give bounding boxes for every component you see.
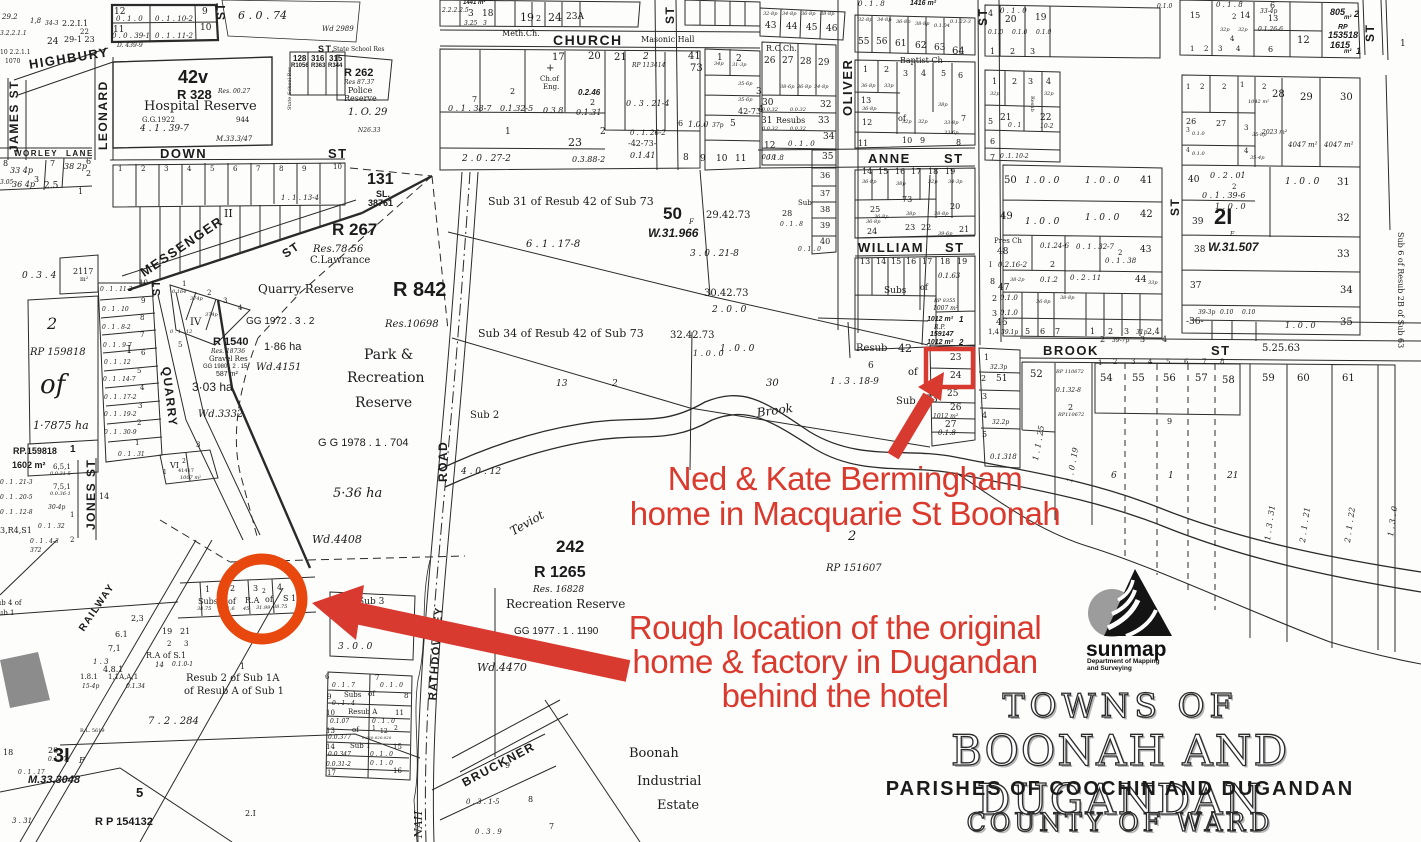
map-label: 0.10 — [1220, 310, 1233, 316]
map-label: Reserve — [355, 396, 412, 410]
map-label: 54 — [1100, 374, 1113, 384]
map-label: of Resub A of Sub 1 — [184, 687, 284, 697]
map-label: 31-3p — [732, 63, 746, 68]
map-label: 32 — [820, 101, 831, 110]
map-label: 0.1.23-3 — [950, 20, 971, 25]
map-label: 8 — [279, 166, 283, 173]
map-label: ST — [664, 6, 676, 24]
map-label: 8 — [140, 315, 144, 322]
map-label: 2 — [600, 128, 606, 137]
map-label: 7 — [375, 675, 379, 682]
map-label: 4 — [238, 305, 242, 312]
map-label: 3 — [992, 310, 997, 318]
map-label: 4 — [1162, 336, 1167, 344]
map-label: CHURCH — [553, 33, 623, 47]
map-label: 242 — [556, 538, 584, 555]
map-label: 23A — [566, 13, 584, 22]
map-label: 0 . 1 . 0 — [1000, 8, 1027, 15]
map-label: 34 — [1340, 286, 1353, 296]
map-label: 38p — [906, 212, 916, 217]
map-label: 0 . 1 . 19-2 — [104, 412, 137, 418]
map-label: Subs — [884, 287, 906, 296]
map-label: 2 — [86, 170, 91, 178]
map-label: 1 — [1400, 40, 1406, 49]
map-label: Wd.4470 — [477, 662, 527, 673]
map-label: 0.1.04 — [934, 24, 950, 29]
map-label: 1 — [959, 316, 963, 324]
map-label: 19 — [957, 258, 967, 266]
map-label: 6 — [1268, 46, 1273, 54]
map-label: 2 — [1100, 336, 1105, 344]
map-label: 7 . 2 . 284 — [148, 717, 199, 727]
map-label: 15-4p — [82, 684, 99, 690]
map-label: ST — [1169, 198, 1181, 216]
map-label: 6 — [141, 350, 145, 357]
map-label: Reserve — [344, 95, 377, 103]
map-label: 17 — [552, 53, 565, 63]
map-label: 1 — [863, 66, 868, 74]
map-label: 61 — [1342, 374, 1355, 384]
map-label: 1·7875 ha — [33, 420, 89, 431]
map-label: 2 — [992, 295, 997, 303]
map-label: R.L. 5619 — [80, 729, 105, 734]
map-label: 24 — [867, 228, 877, 236]
map-label: Baptist Ch — [900, 57, 943, 65]
map-label: 5 — [941, 70, 946, 78]
map-label: Sub 4 of — [0, 600, 22, 607]
map-label: 4 — [1186, 148, 1190, 154]
map-label: Resub — [856, 344, 887, 354]
map-label: 1 — [118, 166, 122, 173]
map-label: 56 — [1163, 374, 1176, 384]
map-label: 1 — [1186, 84, 1190, 91]
map-label: 4 — [758, 106, 764, 115]
map-label: 0 . 1 . 0 — [370, 752, 393, 758]
map-label: 3.2.2.1.1 — [0, 31, 27, 37]
map-label: 34-3p — [948, 180, 962, 185]
map-label: 1 . 0 . 0 — [1285, 322, 1316, 330]
map-label: Industrial — [637, 775, 701, 788]
map-label: 39-6p — [938, 232, 952, 237]
map-label: 0 . 1 . 32 — [38, 524, 65, 530]
map-label: 10 — [902, 137, 912, 145]
map-label: R 1265 — [534, 565, 586, 581]
map-label: 0.1.6 — [222, 607, 235, 612]
map-label: 49 — [1000, 212, 1013, 222]
map-label: 1.0.0 — [688, 121, 708, 129]
map-label: 38-2p — [1010, 278, 1024, 283]
map-label: 0 . 1 . 12 — [104, 360, 131, 366]
map-label: of — [40, 372, 65, 398]
map-label: 32.42.73 — [670, 331, 715, 341]
map-label: 10 — [139, 280, 148, 287]
map-label: F — [79, 757, 85, 765]
map-label: 1 — [135, 440, 139, 447]
map-label: 42 — [898, 343, 912, 354]
map-label: 4 — [1244, 148, 1248, 155]
map-label: 0.1.07 — [330, 719, 349, 725]
map-label: 0 .1. 10-2 — [1000, 154, 1029, 160]
map-label: RP110672 — [1058, 413, 1084, 418]
map-label: 2117 — [73, 268, 93, 276]
map-label: 1007 m² — [933, 306, 958, 312]
map-label: 0.1.26-6 — [1258, 27, 1283, 33]
map-label: 1 . 3 . 18-9 — [830, 378, 879, 387]
map-label: 2 . 0 . 27-2 — [462, 155, 511, 164]
map-label: 3 — [196, 442, 200, 449]
map-label: Sub 1 — [0, 610, 14, 617]
map-label: 374p — [190, 297, 203, 302]
map-label: 29 — [1300, 93, 1313, 103]
map-label: 2.5 — [44, 182, 58, 191]
map-label: GG 1972 . 3 . 2 — [246, 317, 314, 327]
map-label: 2 — [47, 316, 57, 332]
map-label: 14 — [862, 168, 872, 176]
map-label: 7,1 — [108, 645, 121, 653]
map-label: 8 — [528, 796, 533, 804]
map-label: 1 — [1356, 47, 1361, 56]
map-label: 6 — [990, 138, 995, 146]
map-label: M.33.3/47 — [216, 136, 252, 143]
map-label: Subs — [344, 692, 361, 699]
map-label: 45 — [806, 24, 817, 33]
map-label: 26 — [764, 57, 775, 66]
map-label: Sub 34 of Resub 42 of Sub 73 — [478, 328, 644, 339]
map-label: 4 — [140, 385, 144, 392]
map-label: 0 . 1 . 4-3 — [30, 539, 59, 545]
map-label: 37p — [712, 123, 723, 129]
map-label: 11 — [395, 710, 404, 717]
map-label: 21 — [959, 226, 969, 234]
map-label: 62 — [915, 42, 926, 51]
map-label: 3 — [184, 641, 188, 648]
map-label: Wd 2989 — [322, 26, 354, 33]
map-label: 37 — [1190, 282, 1201, 291]
map-label: 6.1 — [115, 631, 128, 639]
map-label: 1042 m² — [1248, 100, 1269, 105]
map-label: 1 . 0 . 0 — [1025, 177, 1059, 186]
map-label: 0.3.8 — [543, 107, 563, 115]
map-label: 20 — [950, 203, 960, 211]
map-label: 18 — [940, 258, 950, 266]
map-label: 36 — [820, 172, 830, 180]
map-label: 18 — [482, 10, 493, 19]
map-label: 0 . 1 — [1008, 123, 1021, 129]
map-label: 0.0.32 — [790, 127, 806, 132]
map-label: 16 — [906, 258, 916, 266]
map-label: R 842 — [393, 280, 446, 300]
map-label: 0.1.2 — [1040, 277, 1058, 284]
map-label: 0.1.0 — [988, 30, 1003, 36]
map-label: 128 — [293, 55, 306, 63]
map-label: 5 — [210, 166, 214, 173]
map-label: 3,R4,S1 — [0, 527, 32, 535]
map-label: 13 — [861, 97, 871, 105]
map-label: 3 — [1140, 336, 1145, 344]
map-label: Resub A — [348, 709, 377, 716]
map-label: 4 — [1046, 78, 1051, 86]
map-label: 9 — [141, 298, 145, 305]
map-label: IV — [190, 318, 201, 328]
map-label: 2.2.2.2.5 — [442, 8, 469, 14]
map-label: 0 . 3 . 21-4 — [626, 100, 669, 108]
map-label: OLIVER — [841, 59, 854, 116]
map-label: Wd.4408 — [312, 534, 362, 545]
map-label: 1 . 0 . 0 — [1025, 218, 1059, 227]
map-label: 0.0.32 — [790, 108, 806, 113]
map-label: 10-2 — [1040, 124, 1053, 130]
map-label: 5 — [178, 342, 182, 349]
map-label: Resubs — [776, 117, 805, 125]
map-label: 7 — [1202, 359, 1206, 366]
map-label: 35-6p — [738, 82, 752, 87]
map-label: 2 — [230, 585, 235, 593]
map-label: 33 — [818, 117, 829, 126]
map-label: LEONARD — [97, 80, 109, 150]
map-label: 28 — [800, 58, 811, 67]
map-label: 1 — [990, 48, 995, 56]
map-label: R 262 — [344, 68, 373, 79]
map-label: 2 — [207, 290, 211, 297]
map-label: 23 — [905, 224, 915, 232]
map-label: 44 — [786, 23, 797, 32]
map-label: 0.0.32 — [762, 127, 778, 132]
map-label: F — [1230, 232, 1234, 238]
annotation-line: Ned & Kate Bermingham — [615, 461, 1075, 496]
map-label: 33-8p — [944, 121, 958, 126]
map-label: 0 . 1 . 11-2 — [155, 33, 193, 40]
map-label: 4 — [1236, 46, 1240, 53]
map-label: WORLEY — [14, 150, 58, 158]
map-label: 12 — [862, 119, 872, 127]
map-label: Res. 16828 — [533, 586, 584, 595]
map-label: 0 . 1 . 0 — [380, 683, 403, 689]
map-label: 1 . 0 . 0 — [720, 345, 754, 354]
map-label: 31.99 — [256, 606, 270, 611]
map-label: 0.0.36-1 — [50, 492, 71, 497]
map-label: 2 — [394, 726, 398, 732]
map-label: 14 — [155, 662, 164, 669]
map-label: 0 . 1 . 8 — [858, 1, 885, 8]
map-label: 3 — [1124, 328, 1129, 336]
map-label: 0 . 3 . 4 — [22, 272, 56, 281]
map-label: 39.1p — [1001, 330, 1018, 336]
map-label: 1 — [70, 512, 74, 519]
shaded-lot — [0, 652, 50, 708]
map-label: 4047 m² — [1288, 142, 1317, 149]
map-label: State School Res — [333, 47, 385, 53]
map-label: ST — [944, 152, 964, 165]
map-label: 0 . 1 . 38-7 — [448, 105, 491, 113]
map-label: 21 — [1227, 472, 1238, 481]
map-label: 0 . 2 . 01 — [1210, 172, 1246, 180]
map-label: 6 — [1184, 359, 1188, 366]
map-label: 0 . 1 . 14-7 — [103, 377, 136, 383]
map-label: 48 — [997, 248, 1008, 257]
map-label: 9 — [202, 8, 208, 17]
map-label: 9 — [920, 137, 925, 145]
map-label: 38-8p — [1060, 296, 1074, 301]
map-label: 3 . 0 . 21-8 — [690, 250, 739, 259]
map-label: Gravel Res — [209, 356, 248, 363]
map-label: 7 — [256, 166, 260, 173]
map-label: 14 — [876, 258, 886, 266]
map-label: 14 — [1240, 12, 1250, 20]
map-label: Estate — [657, 799, 699, 812]
map-label: 32p — [928, 180, 938, 185]
map-label: 2 — [1262, 84, 1266, 91]
map-label: 131 — [367, 172, 394, 188]
map-label: 2 . 0 . 0 — [712, 306, 746, 315]
map-label: of — [352, 727, 359, 734]
map-label: 0.1.31 — [576, 109, 601, 117]
map-label: Boonah — [629, 747, 679, 760]
map-label: 153518 — [1328, 31, 1358, 40]
map-label: 0 . 3 . 1-5 — [466, 799, 500, 806]
map-label: 32.2p — [992, 420, 1009, 426]
map-label: of — [228, 598, 236, 606]
map-label: 33p — [1148, 281, 1158, 286]
map-label: 3·03 ha — [192, 381, 233, 393]
map-label: 52 — [1030, 370, 1043, 380]
map-label: 26 — [950, 404, 961, 413]
map-label: 3 — [1218, 46, 1222, 53]
map-label: 21 — [180, 628, 190, 636]
map-label: 36-8p — [896, 20, 910, 25]
map-label: 1602 m² — [12, 461, 46, 470]
map-label: 24 — [548, 12, 562, 23]
map-label: 32-8p — [858, 18, 872, 23]
map-label: 3 — [1244, 125, 1248, 132]
map-label: 23 — [950, 354, 961, 363]
map-label: 2 — [1108, 328, 1113, 336]
map-label: C.Lawrance — [310, 256, 370, 266]
map-label: Sub — [798, 200, 812, 207]
map-label: ANNE — [868, 152, 911, 165]
map-label: 0 . 1 . 4 — [332, 701, 355, 707]
map-title-towns-of: TOWNS OF — [880, 686, 1360, 725]
map-label: 0 . 1 . 38 — [1105, 258, 1136, 265]
map-label: 13 — [860, 258, 870, 266]
map-label: 1070 — [5, 59, 20, 65]
map-label: 15 — [891, 258, 901, 266]
map-label: 35-6p — [738, 98, 752, 103]
map-label: 33 4p — [10, 167, 33, 175]
map-label: 1 — [1190, 46, 1194, 53]
map-label: 36-8p — [861, 84, 875, 89]
map-canvas: HIGHBURYJAMES STLEONARDDOWNSTWORLEYLANEM… — [0, 0, 1421, 842]
map-label: 34-8p — [782, 12, 796, 17]
map-label: 0.3.88-2 — [572, 156, 605, 164]
map-label: 4 . 1 . 39-7 — [140, 125, 189, 134]
map-label: 7 — [961, 115, 966, 123]
map-label: 2I — [1214, 206, 1232, 228]
map-label: 4 — [988, 10, 993, 18]
map-label: 34 — [823, 133, 834, 142]
map-label: 32p — [1238, 28, 1248, 33]
map-label: 0.1.34 — [126, 684, 145, 690]
map-label: 32p — [1044, 92, 1054, 97]
map-label: 38p — [938, 103, 948, 108]
map-label: 0.1.17 — [48, 757, 67, 763]
map-label: 15 — [1190, 12, 1200, 20]
map-label: 1 — [1168, 472, 1174, 481]
map-label: 37 — [820, 190, 830, 198]
map-label: 38.75 — [197, 607, 211, 612]
map-label: 30 — [766, 379, 779, 389]
map-label: 3 — [483, 21, 487, 27]
map-label: -36- — [1186, 318, 1204, 327]
map-label: Res. 00.27 — [218, 89, 250, 95]
map-label: 36-8p — [866, 220, 880, 225]
map-label: 41417 — [178, 469, 194, 474]
map-label: 27 — [782, 57, 793, 66]
map-label: 6 . 0 . 74 — [238, 10, 287, 21]
map-label: 73 — [902, 196, 912, 204]
map-label: 0.164 — [172, 290, 186, 295]
map-label: 18 — [3, 749, 13, 757]
map-label: 38 2p — [64, 163, 87, 171]
map-label: R P 154132 — [95, 817, 153, 828]
annotation-ned-kate: Ned & Kate Bermingham home in Macquarie … — [615, 461, 1075, 531]
map-label: 58 — [1222, 376, 1235, 386]
map-label: 4 — [1148, 359, 1152, 366]
map-label: 1 . 1 . 13-4 — [281, 195, 319, 202]
map-label: 64 — [952, 47, 965, 57]
map-label: 0 . 1 . 31 — [118, 452, 145, 458]
map-label: 36-8p — [862, 180, 876, 185]
map-label: 2 — [182, 459, 186, 465]
map-label: 0 . 1 . 32-7 — [1076, 244, 1114, 251]
map-label: 59 — [1262, 374, 1275, 384]
map-label: 47 — [998, 284, 1009, 293]
map-label: Res.10698 — [385, 320, 439, 330]
map-label: 0.1.0 — [1000, 295, 1018, 302]
map-label: II — [224, 208, 233, 219]
map-label: 1 — [984, 354, 989, 362]
map-label: 1 — [163, 470, 167, 476]
map-label: 39-3p — [1198, 310, 1215, 316]
map-label: RP 8355 — [934, 299, 955, 304]
map-label: 30-4p — [48, 505, 65, 511]
map-label: 41 — [1140, 176, 1153, 186]
map-label: Ch.of — [540, 76, 559, 83]
map-label: Wd.3332 — [198, 410, 243, 420]
map-label: 12 — [764, 142, 775, 151]
map-label: 0 . 1 . 30-9 — [104, 430, 137, 436]
map-label: 6 — [958, 72, 963, 80]
map-label: 73 — [690, 64, 703, 74]
map-label: 2 — [1200, 84, 1204, 91]
map-label: m² — [1344, 49, 1351, 55]
map-label: 2 — [510, 88, 515, 96]
map-label: 36-8p — [1036, 300, 1050, 305]
map-label: of — [368, 691, 375, 698]
map-label: 2 — [1050, 261, 1055, 269]
map-label: of — [265, 596, 273, 604]
sunmap-dept-line: and Surveying — [1087, 665, 1160, 672]
map-label: 2 — [1222, 84, 1226, 91]
map-label: Quarry Reserve — [258, 283, 354, 295]
sunmap-logo: sunmap Department of Mapping and Surveyi… — [1078, 566, 1198, 676]
map-label: 19 — [945, 168, 955, 176]
map-label: 2,4 — [1147, 328, 1160, 336]
map-label: 55 — [858, 38, 869, 47]
map-label: 40 — [820, 238, 830, 246]
map-label: 1 — [1240, 82, 1244, 89]
map-label: 3.05 — [0, 180, 13, 186]
map-label: 39 — [820, 222, 830, 230]
